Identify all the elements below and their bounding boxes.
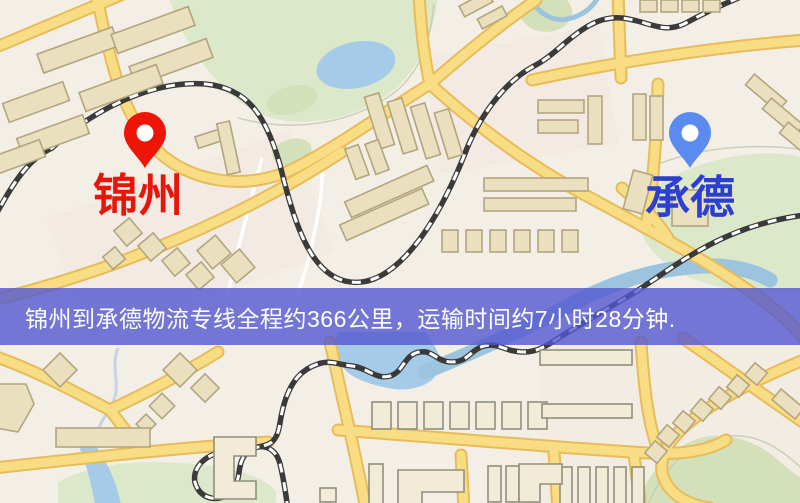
marker-chengde[interactable] — [666, 112, 714, 170]
location-pin-icon — [666, 112, 714, 170]
route-info-banner: 锦州到承德物流专线全程约366公里，运输时间约7小时28分钟. — [0, 288, 800, 345]
marker-jinzhou[interactable] — [121, 112, 169, 170]
map-canvas — [0, 0, 800, 503]
map-view[interactable]: 锦州 承德 锦州到承德物流专线全程约366公里，运输时间约7小时28分钟. — [0, 0, 800, 503]
route-info-text: 锦州到承德物流专线全程约366公里，运输时间约7小时28分钟. — [25, 300, 676, 334]
location-pin-icon — [121, 112, 169, 170]
